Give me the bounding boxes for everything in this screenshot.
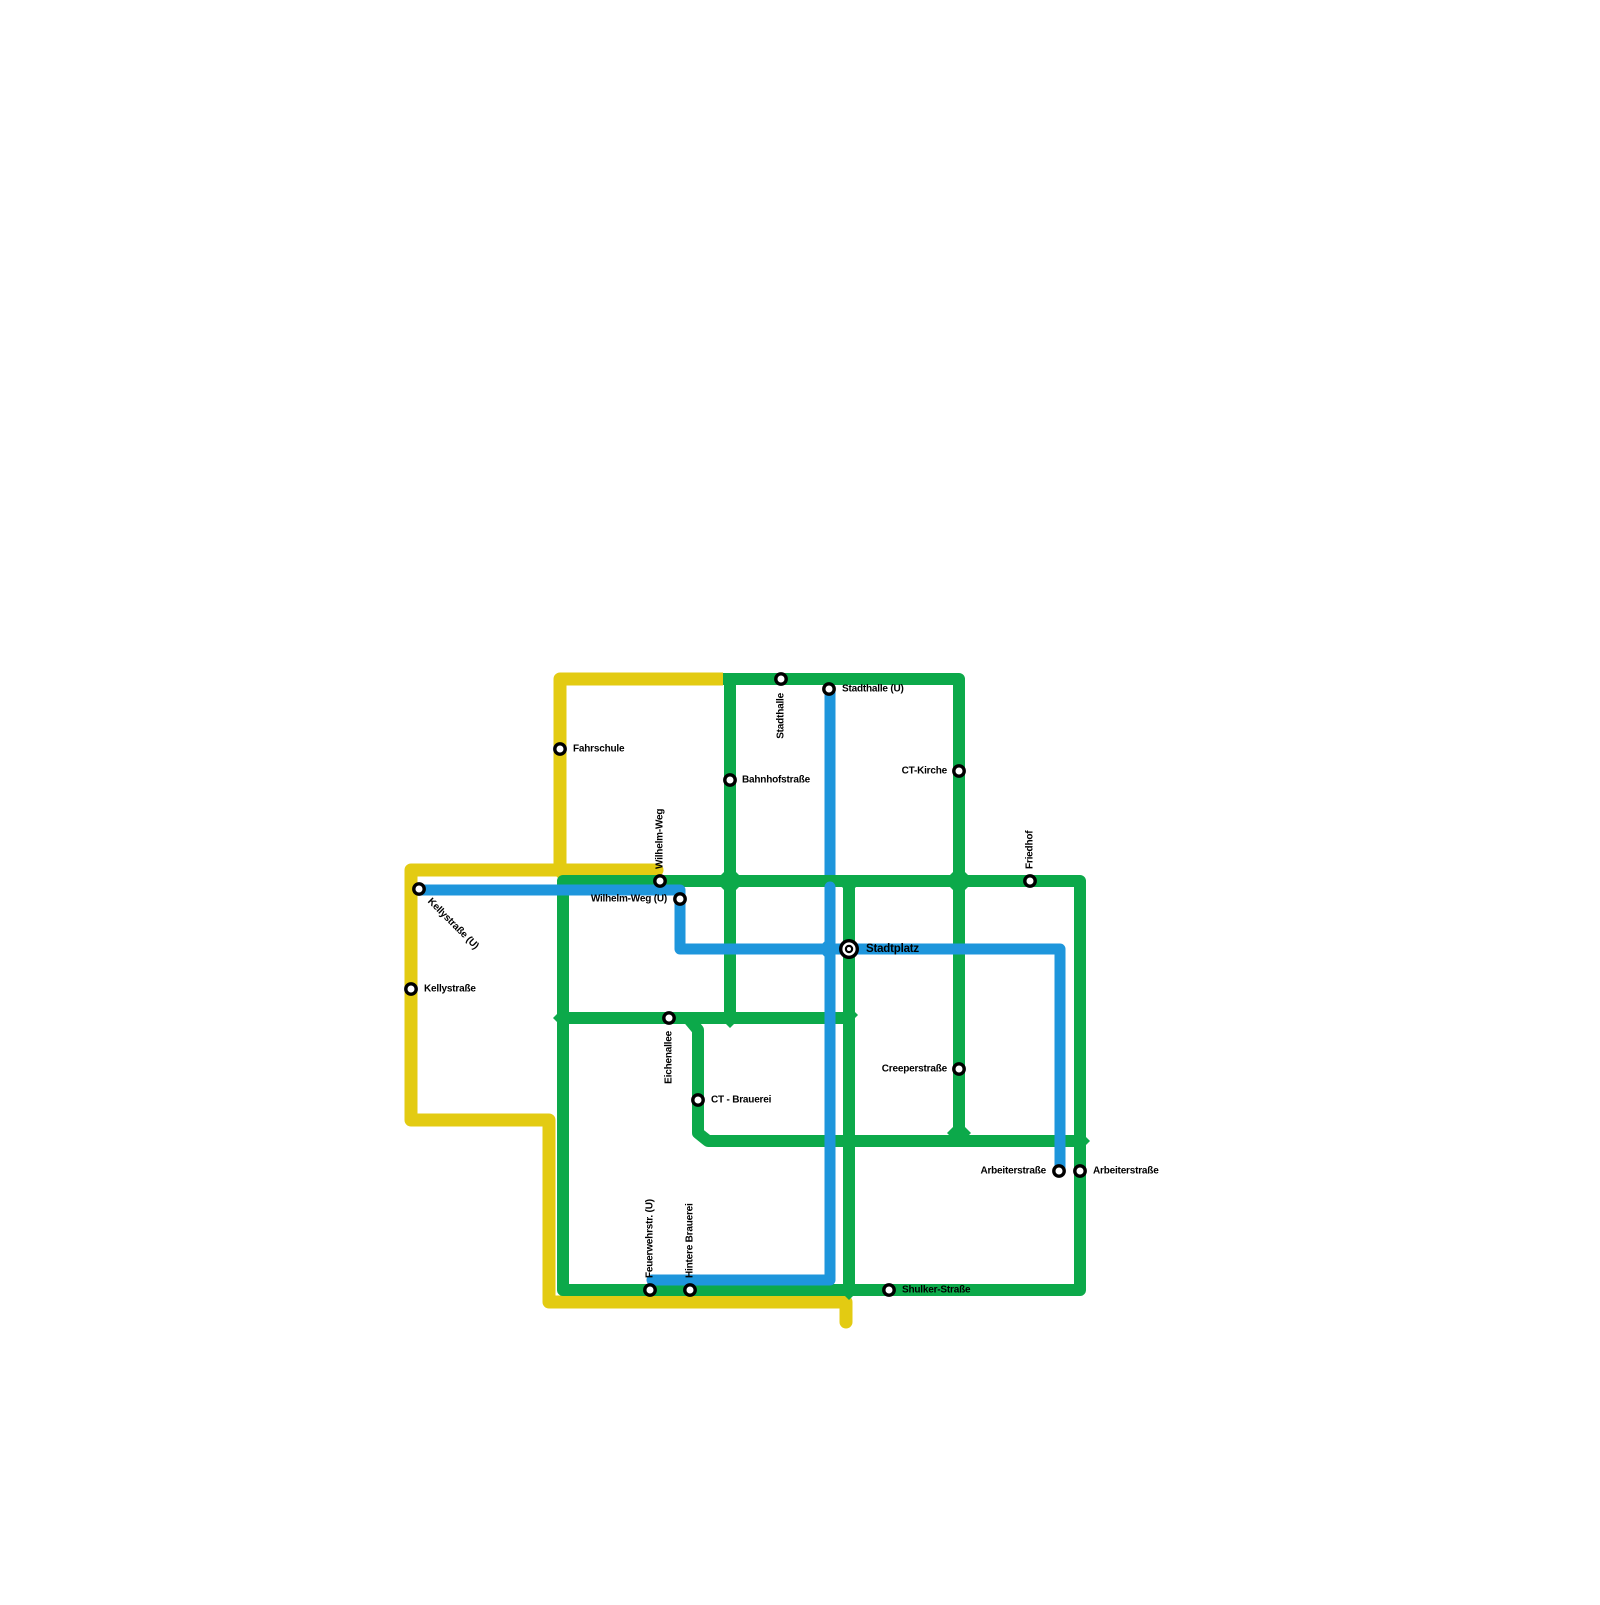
station-label-fahrschule: Fahrschule: [573, 744, 625, 755]
station-dot-icon[interactable]: [1075, 1166, 1085, 1176]
station-dot-icon[interactable]: [776, 674, 786, 684]
station-dot-icon[interactable]: [693, 1095, 703, 1105]
transit-map-canvas: FahrschuleKellystraße (U)KellystraßeStad…: [0, 0, 1600, 1600]
station-dot-icon[interactable]: [645, 1285, 655, 1295]
station-dot-icon[interactable]: [414, 884, 424, 894]
station-ct-kirche[interactable]: CT-Kirche: [902, 766, 965, 777]
station-dot-icon[interactable]: [954, 1064, 964, 1074]
station-label-bahnhofstrasse: Bahnhofstraße: [742, 775, 811, 786]
station-label-hintere-brauerei: Hintere Brauerei: [685, 1203, 696, 1278]
station-label-eichenallee: Eichenallee: [664, 1030, 675, 1083]
station-label-shulker-strasse: Shulker-Straße: [902, 1285, 971, 1296]
station-label-ct-kirche: CT-Kirche: [902, 766, 948, 777]
station-label-stadtplatz: Stadtplatz: [866, 943, 919, 955]
station-label-arbeiterstrasse-u: Arbeiterstraße: [980, 1166, 1046, 1177]
station-label-arbeiterstrasse: Arbeiterstraße: [1093, 1166, 1159, 1177]
station-label-ct-brauerei: CT - Brauerei: [711, 1095, 772, 1106]
station-label-wilhelm-weg-u: Wilhelm-Weg (U): [591, 894, 667, 905]
station-dot-icon[interactable]: [555, 744, 565, 754]
station-dot-icon[interactable]: [1025, 876, 1035, 886]
station-dot-icon[interactable]: [685, 1285, 695, 1295]
station-dot-icon[interactable]: [406, 984, 416, 994]
station-dot-icon[interactable]: [824, 684, 834, 694]
station-label-wilhelm-weg: Wilhelm-Weg: [655, 809, 666, 869]
station-dot-icon[interactable]: [664, 1013, 674, 1023]
station-fahrschule[interactable]: Fahrschule: [555, 744, 625, 755]
station-dot-icon[interactable]: [655, 876, 665, 886]
station-dot-icon[interactable]: [725, 775, 735, 785]
station-dot-icon[interactable]: [954, 766, 964, 776]
station-label-stadthalle: Stadthalle: [776, 692, 787, 738]
station-label-stadthalle-u: Stadthalle (U): [842, 684, 904, 695]
station-eichenallee[interactable]: Eichenallee: [664, 1013, 675, 1084]
station-label-kellystrasse: Kellystraße: [424, 984, 476, 995]
station-stadthalle[interactable]: Stadthalle: [776, 674, 787, 739]
station-label-creeperstrasse: Creeperstraße: [882, 1064, 948, 1075]
station-dot-icon[interactable]: [1054, 1166, 1064, 1176]
transit-map: FahrschuleKellystraße (U)KellystraßeStad…: [0, 0, 1600, 1600]
station-friedhof[interactable]: Friedhof: [1025, 830, 1036, 886]
station-label-friedhof: Friedhof: [1025, 830, 1036, 869]
station-kellystrasse[interactable]: Kellystraße: [406, 984, 477, 995]
station-label-feuerwehrstr-u: Feuerwehrstr. (U): [645, 1199, 656, 1278]
station-dot-icon[interactable]: [675, 894, 685, 904]
station-dot-icon[interactable]: [884, 1285, 894, 1295]
map-background: [0, 0, 1600, 1600]
interchange-station-icon-center: [847, 947, 851, 951]
